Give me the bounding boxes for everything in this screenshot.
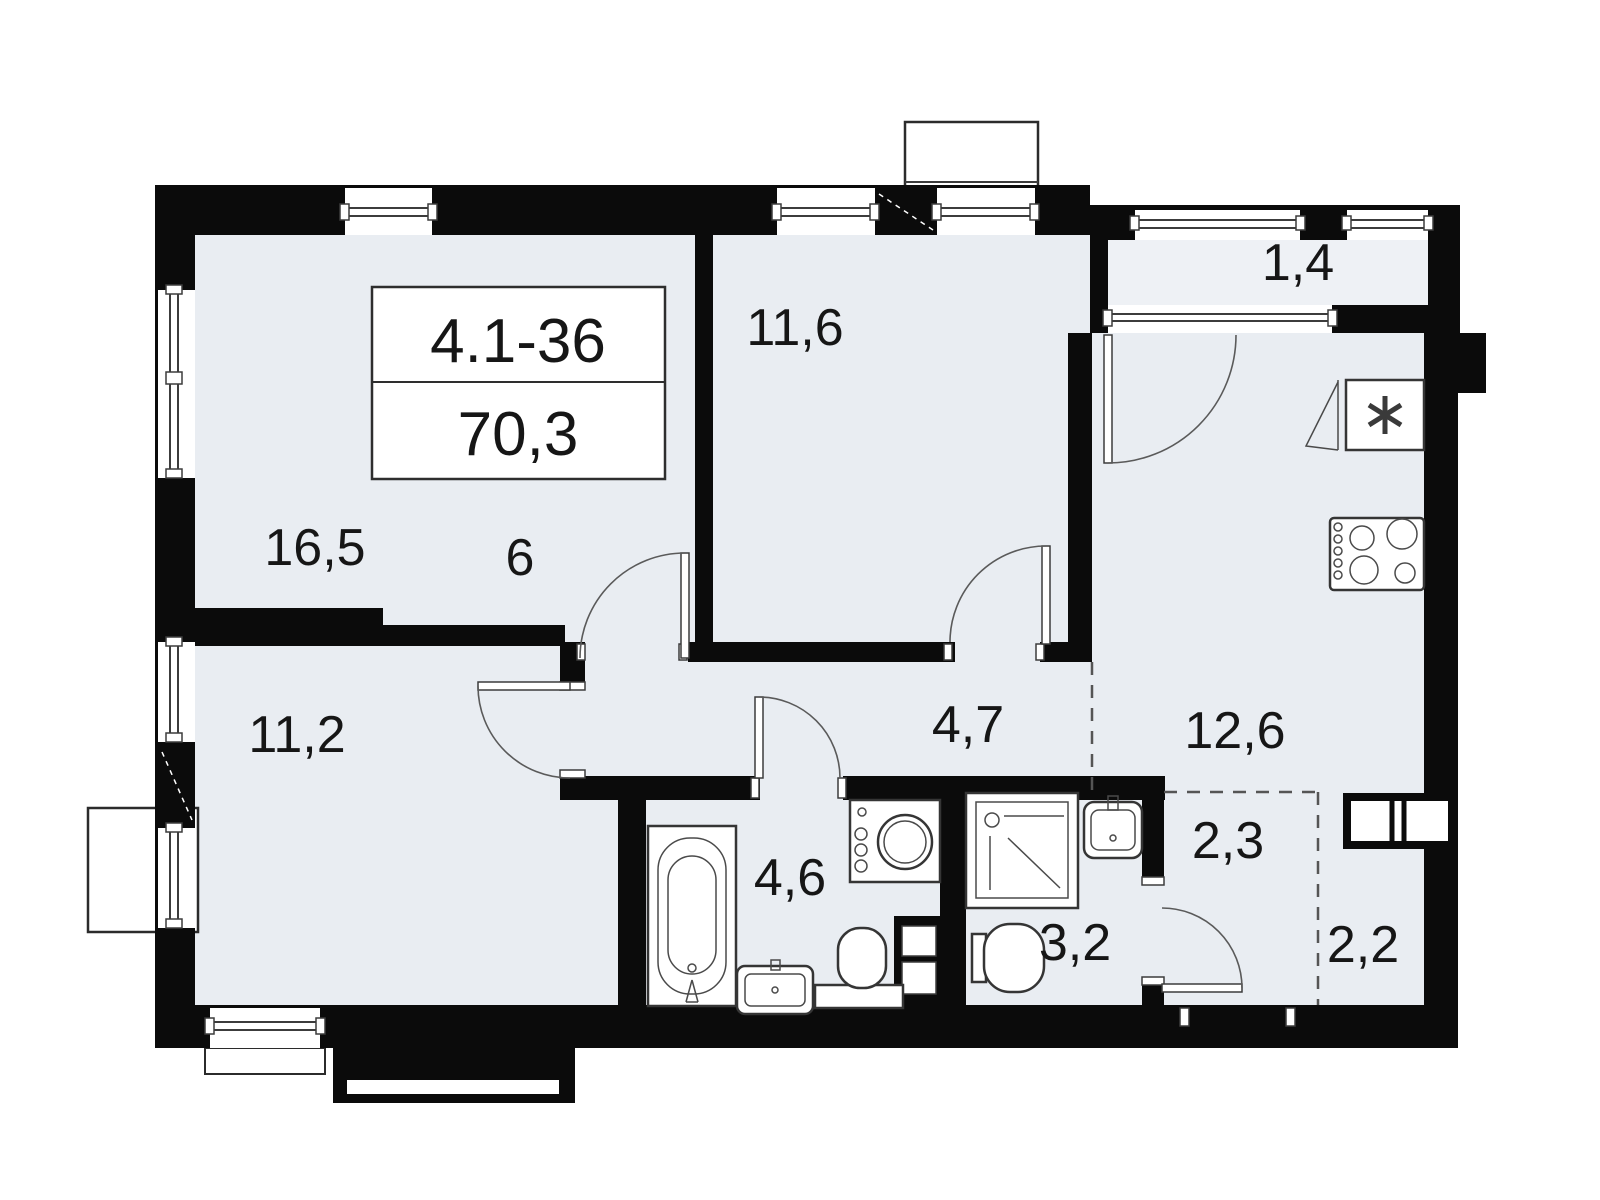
shaft-panel-1 bbox=[902, 926, 936, 956]
wall-shower-east-lower bbox=[1142, 983, 1164, 1008]
window-bedroom-top-2 bbox=[932, 188, 1039, 235]
wall-living-bedroom bbox=[695, 235, 713, 642]
label-kitchen-living: 12,6 bbox=[1184, 702, 1285, 760]
window-bay-left bbox=[158, 823, 195, 928]
label-bathroom: 4,6 bbox=[754, 849, 826, 907]
shower-toilet-icon bbox=[972, 924, 1044, 992]
shower-sink-icon bbox=[1084, 796, 1142, 858]
unit-number: 4.1-36 bbox=[430, 307, 606, 376]
wall-living-bedroom2-thick bbox=[155, 608, 383, 646]
bottom-sill-outline bbox=[205, 1048, 325, 1074]
wall-bottom-step bbox=[333, 1045, 575, 1103]
floor-plan-canvas: 4.1-36 70,3 16,5 6 11,6 1,4 12,6 11,2 4,… bbox=[0, 0, 1600, 1200]
label-shower-room: 3,2 bbox=[1039, 914, 1111, 972]
unit-info-box: 4.1-36 70,3 bbox=[372, 287, 665, 479]
label-wardrobe: 2,2 bbox=[1327, 916, 1399, 974]
wall-right-step bbox=[1424, 333, 1486, 393]
window-bedroom-top-1 bbox=[772, 188, 879, 235]
label-kitchen-niche: 6 bbox=[506, 529, 535, 587]
window-bedroom-bottom-left bbox=[158, 637, 195, 742]
wall-bottom-step-line bbox=[347, 1080, 559, 1094]
wall-hall-north-b bbox=[688, 642, 955, 662]
upper-balcony-outline bbox=[905, 122, 1038, 190]
bathroom-sink-icon bbox=[737, 960, 813, 1014]
shower-cabin-icon bbox=[966, 793, 1078, 908]
wall-shower-east-upper bbox=[1142, 800, 1164, 885]
label-entry-hall: 2,3 bbox=[1192, 812, 1264, 870]
window-kitchen-balcony bbox=[1103, 305, 1337, 333]
wall-right bbox=[1424, 333, 1458, 1048]
entrance-jamb-left bbox=[1180, 1008, 1189, 1026]
wall-bathroom-west bbox=[618, 798, 646, 1008]
label-living-room: 16,5 bbox=[264, 519, 365, 577]
wardrobe-icon bbox=[1347, 797, 1452, 845]
stove-icon bbox=[1330, 518, 1424, 590]
wall-living-bedroom2-thin bbox=[380, 625, 565, 646]
window-living-top bbox=[340, 188, 437, 235]
shaft-panel-2 bbox=[902, 962, 936, 994]
unit-total-area: 70,3 bbox=[458, 400, 579, 469]
wall-hall-south-a bbox=[560, 776, 760, 800]
bathtub-icon bbox=[648, 826, 736, 1006]
wall-kitchen-west bbox=[1068, 333, 1092, 662]
entrance-jamb-right bbox=[1286, 1008, 1295, 1026]
label-bedroom-top: 11,6 bbox=[746, 299, 843, 357]
room-bedroom-bottom-floor bbox=[175, 646, 620, 1008]
floor-plan-page: 4.1-36 70,3 16,5 6 11,6 1,4 12,6 11,2 4,… bbox=[0, 0, 1600, 1200]
label-bedroom-bottom: 11,2 bbox=[248, 706, 345, 764]
washing-machine-icon bbox=[850, 800, 940, 882]
window-living-left bbox=[158, 285, 195, 478]
label-hallway: 4,7 bbox=[932, 696, 1004, 754]
window-balcony-2 bbox=[1342, 210, 1433, 240]
window-bedroom-bottom-south bbox=[205, 1008, 325, 1048]
label-balcony: 1,4 bbox=[1262, 234, 1334, 292]
